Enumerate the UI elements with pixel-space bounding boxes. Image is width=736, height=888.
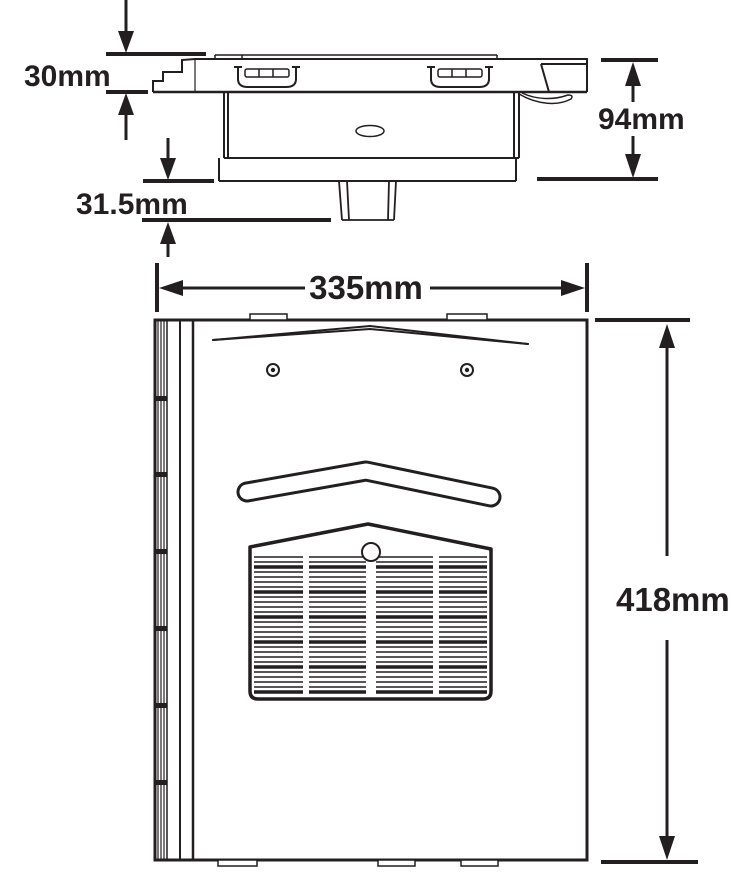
dim-31-5mm-label: 31.5mm xyxy=(76,188,188,221)
top-profile-view xyxy=(153,55,587,220)
grille-screw xyxy=(362,543,380,561)
arrow-right-icon xyxy=(561,280,585,296)
mounting-tab xyxy=(461,860,498,866)
screw-hole xyxy=(267,364,279,376)
dim-31-5mm: 31.5mm xyxy=(76,138,331,257)
arrow-down-icon xyxy=(625,154,641,178)
arrow-down-icon xyxy=(659,836,675,860)
mounting-tab xyxy=(250,314,287,320)
arrow-down-icon xyxy=(118,31,134,53)
dim-94mm-label: 94mm xyxy=(598,103,685,136)
end-block xyxy=(541,64,587,92)
arrow-down-icon xyxy=(160,158,176,180)
mounting-tab xyxy=(378,860,415,866)
arrow-left-icon xyxy=(159,280,183,296)
mounting-tab xyxy=(447,314,487,320)
screw-hole xyxy=(461,364,473,376)
dim-335mm: 335mm xyxy=(157,263,587,312)
dim-418mm-label: 418mm xyxy=(616,581,730,618)
keyhole-slot xyxy=(427,67,493,87)
wall-bracket xyxy=(153,59,195,92)
arrow-up-icon xyxy=(625,62,641,86)
cable-clip xyxy=(519,93,572,103)
mounting-tab xyxy=(218,860,257,866)
dimension-drawing: 30mm 31.5mm 94mm 335mm 4 xyxy=(0,0,736,888)
keyhole-slot xyxy=(234,67,300,87)
arrow-up-icon xyxy=(160,222,176,244)
outlet-spigot xyxy=(339,181,396,220)
dim-30mm-label: 30mm xyxy=(24,60,111,93)
arrow-up-icon xyxy=(118,93,134,115)
dim-30mm: 30mm xyxy=(24,0,206,140)
arrow-up-icon xyxy=(659,324,675,348)
front-view xyxy=(154,314,587,866)
body-oval-detail xyxy=(356,126,384,137)
outlet-grille xyxy=(250,524,491,699)
dim-94mm: 94mm xyxy=(537,60,685,179)
air-deflector-band xyxy=(247,471,491,497)
panel-crease xyxy=(213,329,528,344)
dim-335mm-label: 335mm xyxy=(309,269,423,306)
dim-418mm: 418mm xyxy=(595,320,730,862)
heater-body-lower xyxy=(219,158,516,181)
